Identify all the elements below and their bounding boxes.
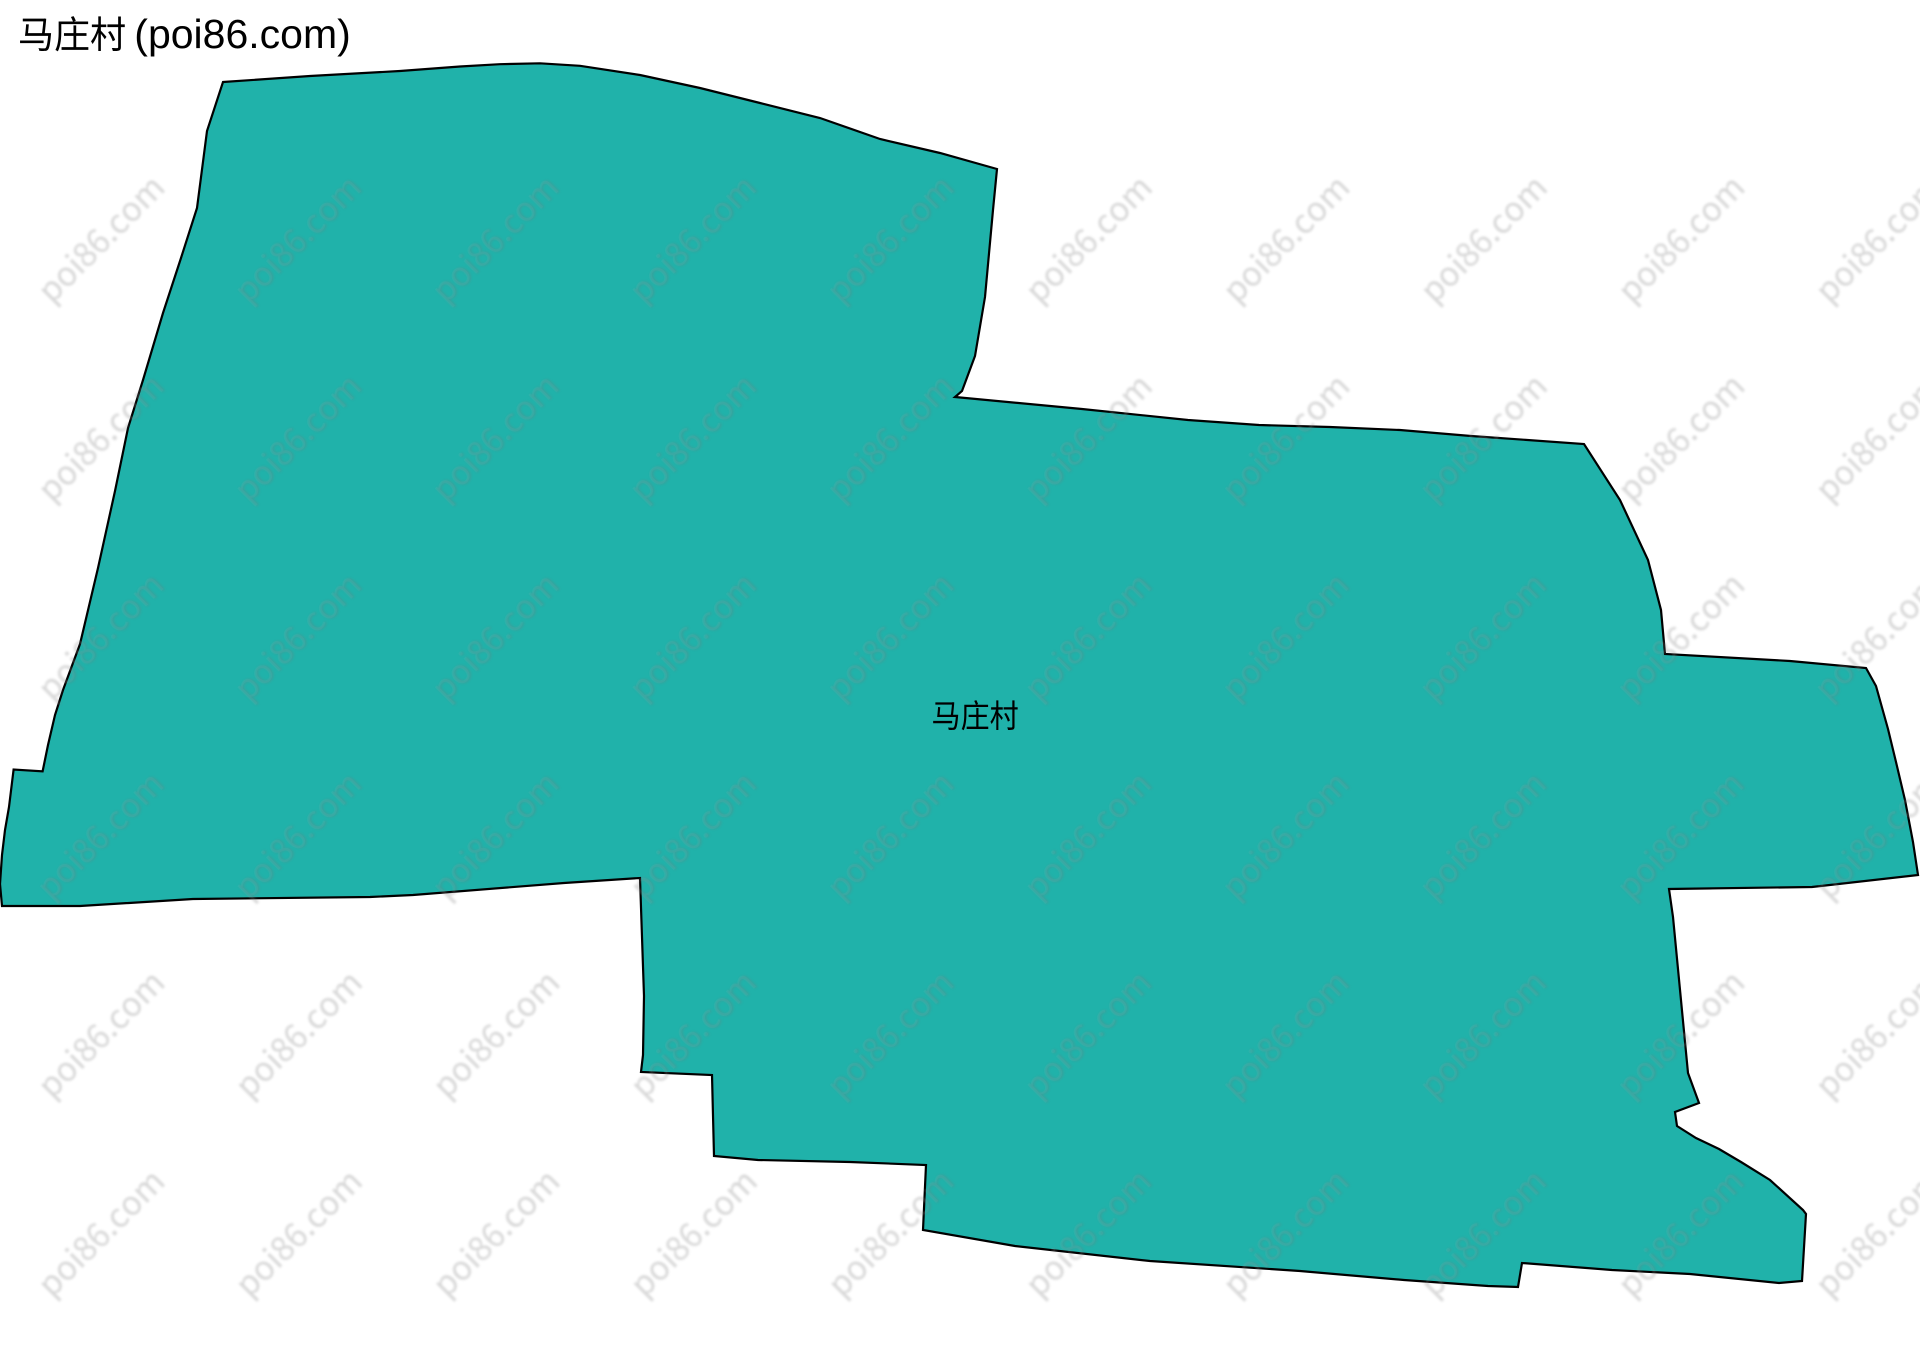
svg-text:(poi86.com): (poi86.com) (134, 11, 350, 57)
